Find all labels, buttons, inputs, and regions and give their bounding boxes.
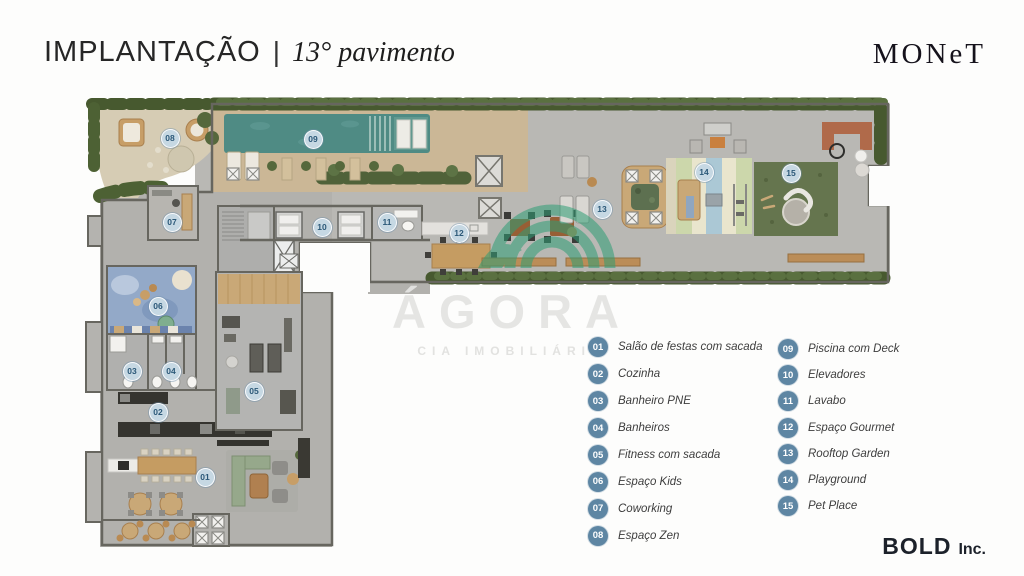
legend-badge-09: 09 — [778, 339, 798, 359]
legend-item-08: 08Espaço Zen — [588, 522, 762, 549]
legend-label-13: Rooftop Garden — [808, 448, 890, 460]
legend-label-06: Espaço Kids — [618, 476, 682, 488]
legend-item-02: 02Cozinha — [588, 361, 762, 388]
legend-label-10: Elevadores — [808, 369, 866, 381]
legend-item-05: 05Fitness com sacada — [588, 442, 762, 469]
legend-item-01: 01Salão de festas com sacada — [588, 334, 762, 361]
legend-label-11: Lavabo — [808, 395, 846, 407]
legend-column-2: 09Piscina com Deck10Elevadores11Lavabo12… — [778, 336, 899, 519]
bold-logo-text: BOLD — [882, 533, 951, 560]
legend-label-07: Coworking — [618, 503, 672, 515]
legend-item-11: 11Lavabo — [778, 388, 899, 414]
legend-label-04: Banheiros — [618, 422, 670, 434]
legend-label-15: Pet Place — [808, 500, 857, 512]
plan-badge-10: 10 — [313, 218, 332, 237]
plan-badge-11: 11 — [378, 213, 397, 232]
legend-badge-12: 12 — [778, 418, 798, 438]
legend-label-08: Espaço Zen — [618, 530, 679, 542]
legend-item-07: 07Coworking — [588, 495, 762, 522]
plan-badge-07: 07 — [163, 213, 182, 232]
legend-item-03: 03Banheiro PNE — [588, 388, 762, 415]
legend-badge-10: 10 — [778, 365, 798, 385]
legend-label-01: Salão de festas com sacada — [618, 341, 762, 353]
legend-label-03: Banheiro PNE — [618, 395, 691, 407]
plan-badge-08: 08 — [161, 129, 180, 148]
legend-badge-02: 02 — [588, 364, 608, 384]
plan-badge-01: 01 — [196, 468, 215, 487]
legend-column-1: 01Salão de festas com sacada02Cozinha03B… — [588, 334, 762, 549]
legend-item-15: 15Pet Place — [778, 493, 899, 519]
legend-item-10: 10Elevadores — [778, 362, 899, 388]
plan-badge-14: 14 — [695, 163, 714, 182]
legend-badge-15: 15 — [778, 496, 798, 516]
plan-badge-06: 06 — [149, 297, 168, 316]
legend-item-09: 09Piscina com Deck — [778, 336, 899, 362]
plan-badge-09: 09 — [304, 130, 323, 149]
legend-label-05: Fitness com sacada — [618, 449, 720, 461]
plan-badge-03: 03 — [123, 362, 142, 381]
page-title-separator: | — [273, 36, 280, 68]
legend-badge-13: 13 — [778, 444, 798, 464]
legend-label-02: Cozinha — [618, 368, 660, 380]
legend-badge-05: 05 — [588, 445, 608, 465]
legend-badge-08: 08 — [588, 526, 608, 546]
legend-label-09: Piscina com Deck — [808, 343, 899, 355]
bold-logo-suffix: Inc. — [958, 541, 986, 559]
plan-badge-02: 02 — [149, 403, 168, 422]
legend-badge-11: 11 — [778, 391, 798, 411]
plan-badge-13: 13 — [593, 200, 612, 219]
plan-badge-04: 04 — [162, 362, 181, 381]
legend-badge-03: 03 — [588, 391, 608, 411]
legend-badge-06: 06 — [588, 472, 608, 492]
plan-badge-15: 15 — [782, 164, 801, 183]
page-title: IMPLANTAÇÃO | 13° pavimento — [44, 36, 455, 69]
legend-badge-07: 07 — [588, 499, 608, 519]
page-title-sub: 13° pavimento — [292, 37, 455, 69]
legend-item-12: 12Espaço Gourmet — [778, 415, 899, 441]
bold-inc-logo: BOLD Inc. — [882, 533, 986, 560]
plan-badge-12: 12 — [450, 224, 469, 243]
legend-item-14: 14Playground — [778, 467, 899, 493]
legend-item-13: 13Rooftop Garden — [778, 441, 899, 467]
page-title-main: IMPLANTAÇÃO — [44, 36, 261, 69]
legend-item-06: 06Espaço Kids — [588, 468, 762, 495]
legend-label-12: Espaço Gourmet — [808, 422, 894, 434]
monet-logo: MONeT — [873, 38, 986, 71]
legend-badge-01: 01 — [588, 337, 608, 357]
plan-badge-05: 05 — [245, 382, 264, 401]
legend-label-14: Playground — [808, 474, 866, 486]
legend-item-04: 04Banheiros — [588, 415, 762, 442]
legend-badge-04: 04 — [588, 418, 608, 438]
legend-badge-14: 14 — [778, 470, 798, 490]
